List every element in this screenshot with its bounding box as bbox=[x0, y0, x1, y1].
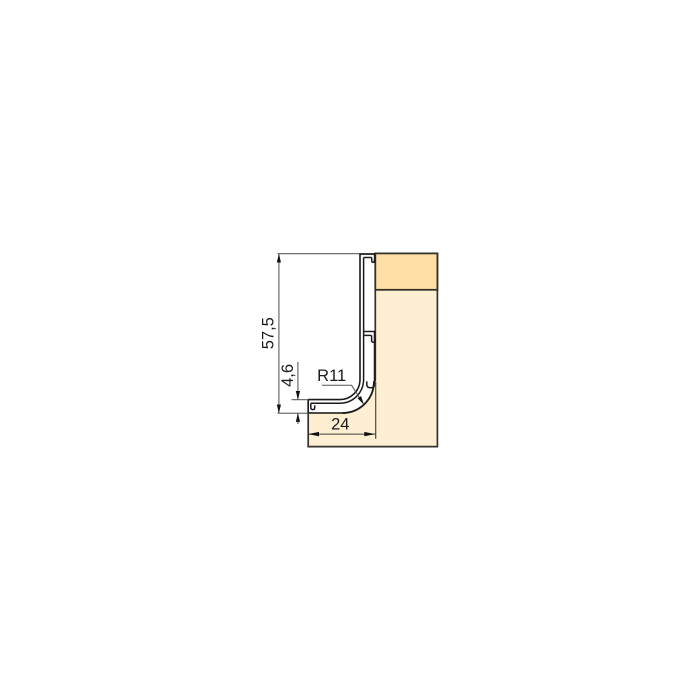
svg-text:4,6: 4,6 bbox=[279, 364, 297, 387]
svg-text:24: 24 bbox=[331, 415, 349, 433]
svg-text:R11: R11 bbox=[317, 367, 346, 385]
svg-text:57,5: 57,5 bbox=[260, 317, 278, 349]
